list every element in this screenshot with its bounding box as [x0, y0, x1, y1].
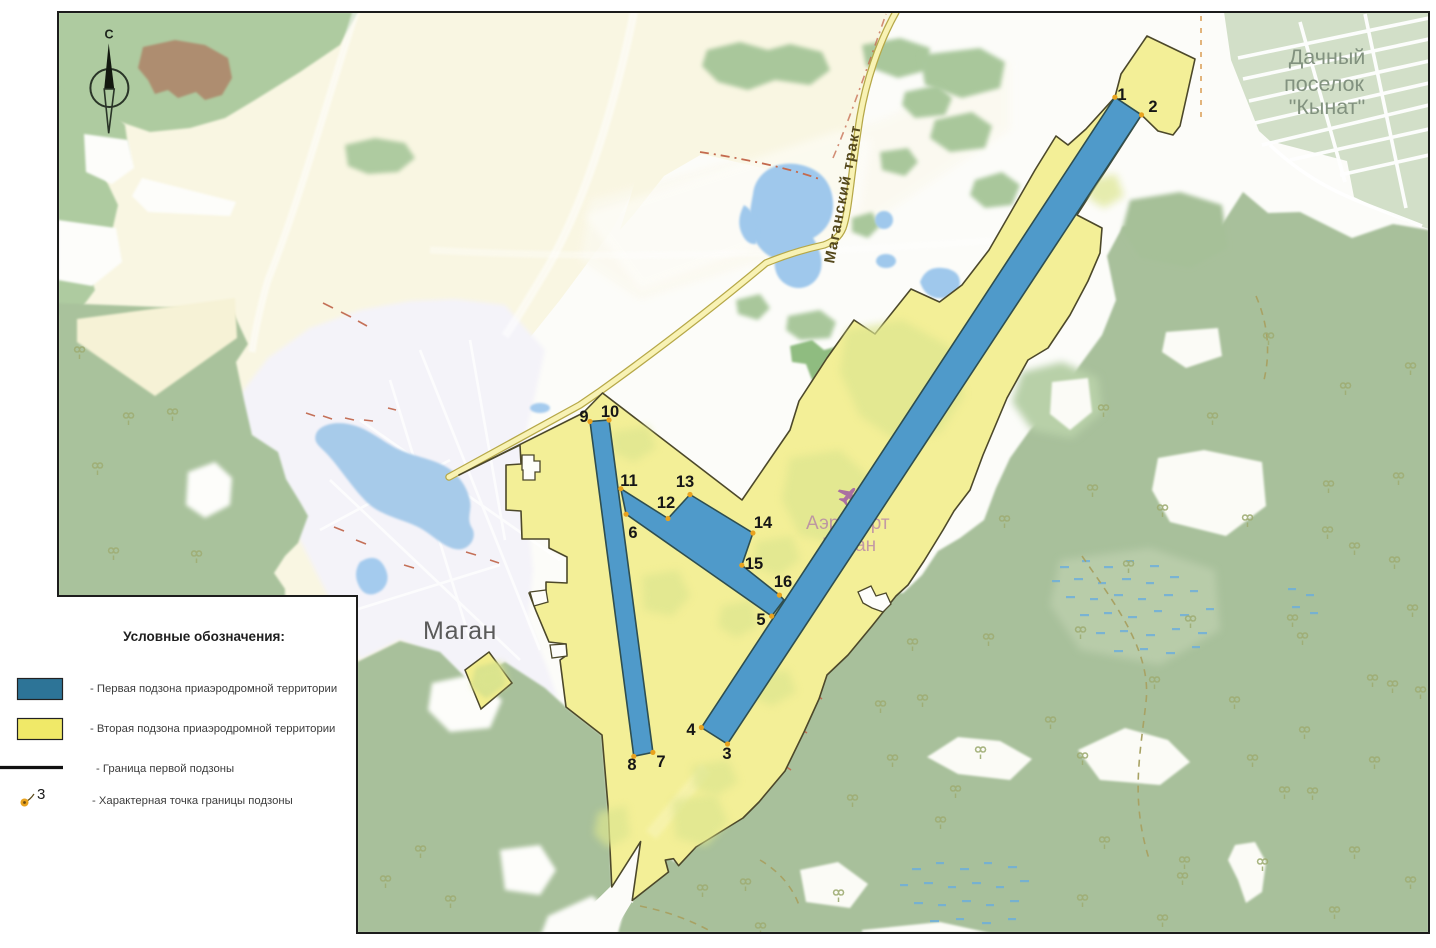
svg-text:- Первая подзона приаэродромно: - Первая подзона приаэродромной территор…	[90, 683, 337, 695]
svg-text:- Характерная точка границы по: - Характерная точка границы подзоны	[92, 795, 293, 807]
svg-text:- Граница первой подзоны: - Граница первой подзоны	[96, 763, 234, 775]
svg-text:"Кынат": "Кынат"	[1289, 95, 1365, 119]
svg-text:С: С	[104, 28, 113, 42]
svg-text:3: 3	[722, 745, 731, 763]
svg-text:3: 3	[37, 786, 45, 803]
svg-text:13: 13	[676, 473, 694, 491]
svg-text:Условные обозначения:: Условные обозначения:	[123, 629, 285, 644]
svg-text:поселок: поселок	[1284, 72, 1364, 96]
svg-text:7: 7	[656, 753, 665, 771]
svg-text:6: 6	[628, 524, 637, 542]
svg-text:9: 9	[579, 408, 588, 426]
svg-text:Дачный: Дачный	[1289, 45, 1366, 69]
svg-text:10: 10	[601, 403, 619, 421]
svg-text:1: 1	[1117, 86, 1126, 104]
svg-text:5: 5	[756, 611, 765, 629]
svg-text:- Вторая подзона приаэродромно: - Вторая подзона приаэродромной территор…	[90, 723, 335, 735]
svg-text:Маган: Маган	[423, 617, 497, 645]
svg-text:2: 2	[1148, 98, 1157, 116]
svg-text:4: 4	[686, 721, 696, 739]
svg-text:11: 11	[620, 472, 637, 490]
svg-text:15: 15	[745, 555, 763, 573]
svg-text:12: 12	[657, 494, 675, 512]
svg-text:16: 16	[774, 573, 792, 591]
svg-text:14: 14	[754, 514, 773, 532]
svg-text:8: 8	[627, 756, 636, 774]
